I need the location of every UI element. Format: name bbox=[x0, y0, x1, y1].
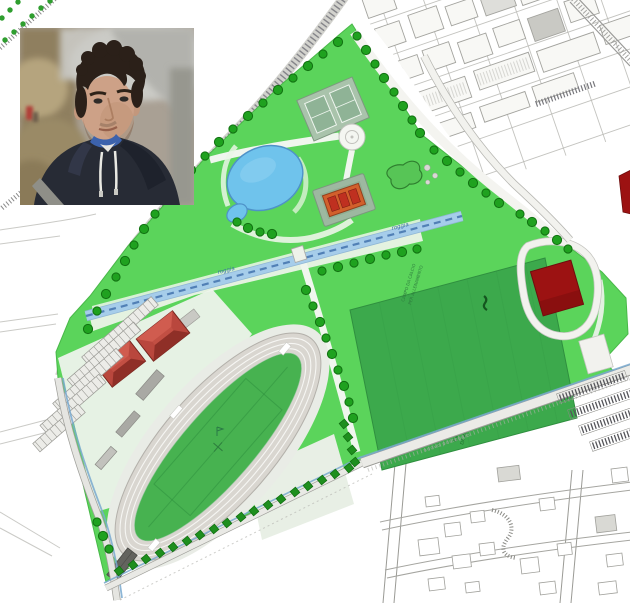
tree-icon bbox=[101, 289, 110, 298]
tree-icon bbox=[494, 198, 503, 207]
tree-icon bbox=[301, 285, 310, 294]
tree-icon bbox=[289, 74, 297, 82]
tree-icon bbox=[541, 227, 549, 235]
tree-icon bbox=[233, 218, 241, 226]
building-block bbox=[611, 467, 629, 483]
building-block bbox=[493, 19, 526, 47]
tree-icon bbox=[98, 531, 107, 540]
tree-icon bbox=[361, 45, 370, 54]
tree-icon bbox=[273, 85, 282, 94]
building-block bbox=[497, 465, 521, 482]
tree-icon bbox=[552, 235, 561, 244]
building-block bbox=[374, 21, 406, 50]
profile-photo-inset bbox=[20, 28, 194, 205]
tree-icon bbox=[11, 29, 16, 34]
tree-icon bbox=[7, 7, 12, 12]
building-block bbox=[598, 581, 617, 595]
building-block bbox=[520, 557, 540, 574]
tree-icon bbox=[564, 245, 572, 253]
tree-icon bbox=[256, 228, 264, 236]
parking-row-dense bbox=[589, 418, 630, 451]
tree-icon bbox=[318, 267, 326, 275]
tree-icon bbox=[345, 398, 353, 406]
tree-icon bbox=[333, 262, 342, 271]
tree-icon bbox=[309, 302, 317, 310]
tree-icon bbox=[415, 128, 424, 137]
tree-icon bbox=[105, 545, 113, 553]
portrait-photo bbox=[20, 28, 194, 205]
building-block bbox=[425, 495, 440, 507]
tree-icon bbox=[348, 413, 357, 422]
tree-icon bbox=[430, 146, 438, 154]
building-block bbox=[361, 0, 397, 18]
tree-icon bbox=[353, 32, 361, 40]
screenshot-stage: roggia roggia bbox=[0, 0, 630, 603]
tree-icon bbox=[334, 366, 342, 374]
tree-icon bbox=[379, 73, 388, 82]
tree-icon bbox=[2, 37, 7, 42]
tree-icon bbox=[120, 256, 129, 265]
tree-icon bbox=[93, 518, 101, 526]
building-block bbox=[444, 522, 461, 537]
tree-icon bbox=[243, 111, 252, 120]
tree-icon bbox=[371, 60, 379, 68]
tree-icon bbox=[482, 189, 490, 197]
tree-icon bbox=[390, 88, 398, 96]
tree-icon bbox=[259, 99, 267, 107]
tree-icon bbox=[83, 324, 92, 333]
tree-icon bbox=[229, 125, 237, 133]
tree-icon bbox=[15, 0, 20, 5]
circular-plaza bbox=[339, 124, 365, 150]
tree-icon bbox=[398, 101, 407, 110]
tree-icon bbox=[516, 210, 524, 218]
building-block bbox=[445, 0, 478, 26]
tree-icon bbox=[112, 273, 120, 281]
tree-icon bbox=[0, 15, 5, 20]
tree-icon bbox=[319, 50, 327, 58]
building-block bbox=[470, 510, 485, 523]
building-block bbox=[516, 0, 552, 6]
tree-icon bbox=[20, 21, 25, 26]
tree-icon bbox=[243, 223, 252, 232]
tree-icon bbox=[93, 307, 101, 315]
tree-icon bbox=[527, 217, 536, 226]
building-block bbox=[606, 553, 623, 567]
drawstring bbox=[115, 151, 116, 190]
building-block bbox=[479, 542, 495, 556]
tree-icon bbox=[442, 156, 451, 165]
tree-icon bbox=[130, 241, 138, 249]
tree-icon bbox=[408, 116, 416, 124]
building-block bbox=[480, 92, 531, 123]
building-block bbox=[527, 8, 565, 41]
tree-icon bbox=[339, 381, 348, 390]
tree-icon bbox=[397, 247, 406, 256]
eye bbox=[120, 96, 129, 101]
tree-icon bbox=[333, 37, 342, 46]
tree-icon bbox=[139, 224, 148, 233]
tree-icon bbox=[315, 317, 324, 326]
tree-icon bbox=[267, 229, 276, 238]
eye bbox=[94, 98, 103, 103]
tree-icon bbox=[47, 0, 52, 4]
tree-icon bbox=[214, 137, 223, 146]
building-block bbox=[539, 581, 556, 595]
tree-icon bbox=[322, 334, 330, 342]
building-block bbox=[539, 497, 555, 511]
building-block bbox=[418, 538, 440, 556]
edge-building-red bbox=[619, 170, 630, 214]
urban-blocks-bottom-right bbox=[380, 452, 630, 603]
tree-icon bbox=[29, 13, 34, 18]
building-block bbox=[408, 6, 444, 38]
building-block bbox=[595, 515, 617, 533]
building-block bbox=[465, 581, 480, 593]
building-block bbox=[557, 542, 572, 556]
tree-icon bbox=[468, 178, 477, 187]
tree-icon bbox=[201, 152, 209, 160]
building-block bbox=[452, 554, 471, 569]
eyebrow bbox=[117, 91, 132, 93]
tree-icon bbox=[456, 168, 464, 176]
background-person-red bbox=[26, 106, 33, 120]
tree-icon bbox=[38, 5, 43, 10]
building-block bbox=[428, 577, 445, 591]
tree-icon bbox=[327, 349, 336, 358]
tree-icon bbox=[382, 251, 390, 259]
building-block bbox=[457, 33, 493, 64]
tree-icon bbox=[413, 245, 421, 253]
parking-row-outline bbox=[589, 418, 630, 451]
tree-icon bbox=[365, 254, 374, 263]
tree-icon bbox=[350, 259, 358, 267]
building-block bbox=[564, 0, 600, 23]
tree-icon bbox=[151, 210, 159, 218]
tree-icon bbox=[303, 61, 312, 70]
parking-stalls bbox=[582, 408, 630, 430]
